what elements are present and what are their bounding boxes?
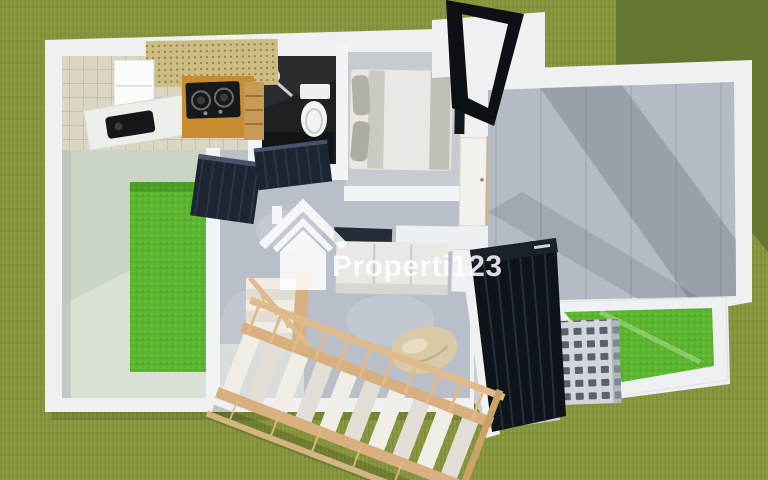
bathroom-door-leaf xyxy=(254,140,333,191)
carport-wall-face xyxy=(62,150,71,398)
render-canvas: Properti123 xyxy=(0,0,768,480)
watermark-text: Properti123 xyxy=(332,250,503,283)
wardrobe-white-door xyxy=(459,137,487,225)
wood-shelf-unit xyxy=(244,82,264,140)
bed-stripe-right xyxy=(429,72,451,170)
toilet-bowl xyxy=(301,101,327,137)
pillow-bottom xyxy=(350,121,370,162)
wall-bath-bed xyxy=(336,44,348,180)
carport-door-leaf xyxy=(190,154,262,224)
wall-bed-south xyxy=(344,186,464,201)
bed xyxy=(349,69,453,171)
pillow-top xyxy=(351,75,370,116)
floor-plan-3d-render: Properti123 xyxy=(0,0,768,480)
cooktop xyxy=(185,81,240,119)
toilet-tank xyxy=(300,84,330,99)
breeze-block-wall xyxy=(557,319,622,405)
bed-stripe-left xyxy=(367,70,385,168)
sofa-front-edge xyxy=(336,283,448,295)
carport-room xyxy=(62,150,206,398)
